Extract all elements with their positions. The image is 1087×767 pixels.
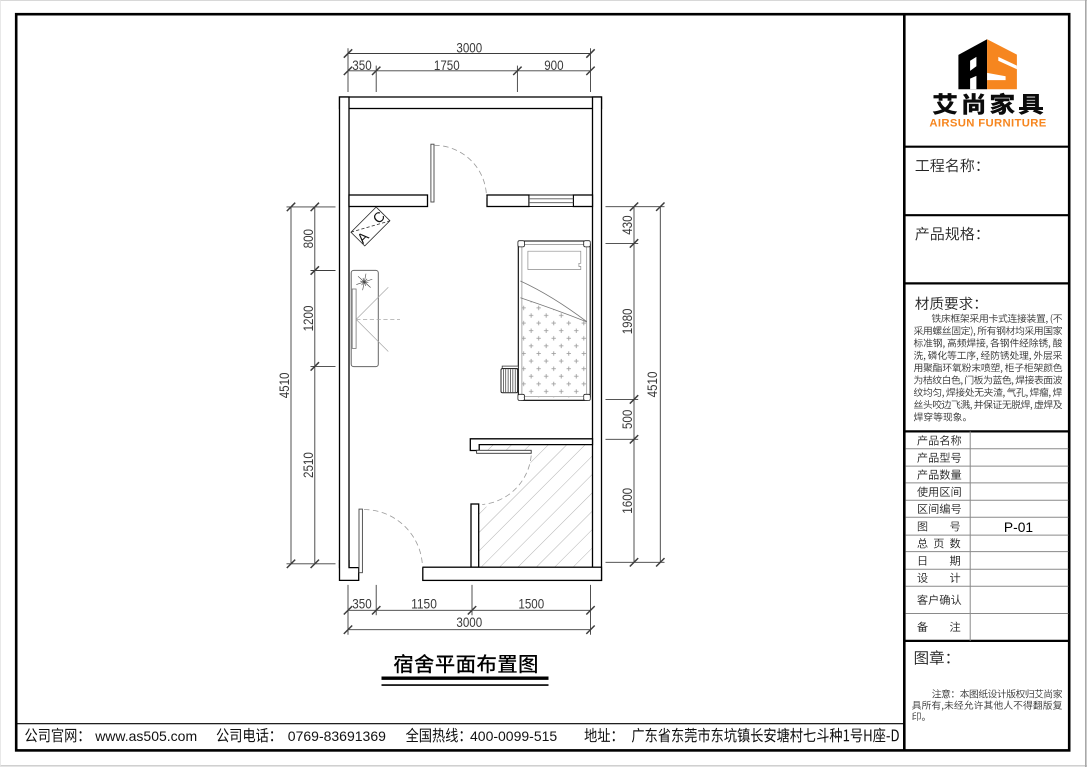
svg-text:0769-83691369: 0769-83691369: [288, 728, 386, 744]
svg-text:1200: 1200: [301, 305, 316, 331]
svg-text:P-01: P-01: [1004, 520, 1033, 535]
svg-text:www.as505.com: www.as505.com: [94, 728, 197, 744]
svg-text:350: 350: [352, 58, 372, 73]
svg-text:4510: 4510: [645, 371, 660, 397]
svg-text:500: 500: [620, 409, 635, 429]
svg-text:1980: 1980: [620, 308, 635, 334]
svg-text:430: 430: [620, 215, 635, 235]
svg-text:AIRSUN FURNITURE: AIRSUN FURNITURE: [929, 117, 1046, 129]
svg-text:400-0099-515: 400-0099-515: [470, 728, 557, 744]
svg-text:1750: 1750: [434, 58, 460, 73]
svg-text:900: 900: [544, 58, 564, 73]
svg-text:3000: 3000: [456, 615, 482, 630]
svg-text:800: 800: [301, 229, 316, 249]
svg-text:350: 350: [352, 596, 372, 611]
svg-text:4510: 4510: [277, 372, 292, 398]
svg-text:2510: 2510: [301, 452, 316, 478]
svg-text:1150: 1150: [411, 596, 437, 611]
svg-text:1500: 1500: [518, 596, 544, 611]
svg-text:1600: 1600: [620, 488, 635, 514]
svg-text:3000: 3000: [456, 40, 482, 55]
